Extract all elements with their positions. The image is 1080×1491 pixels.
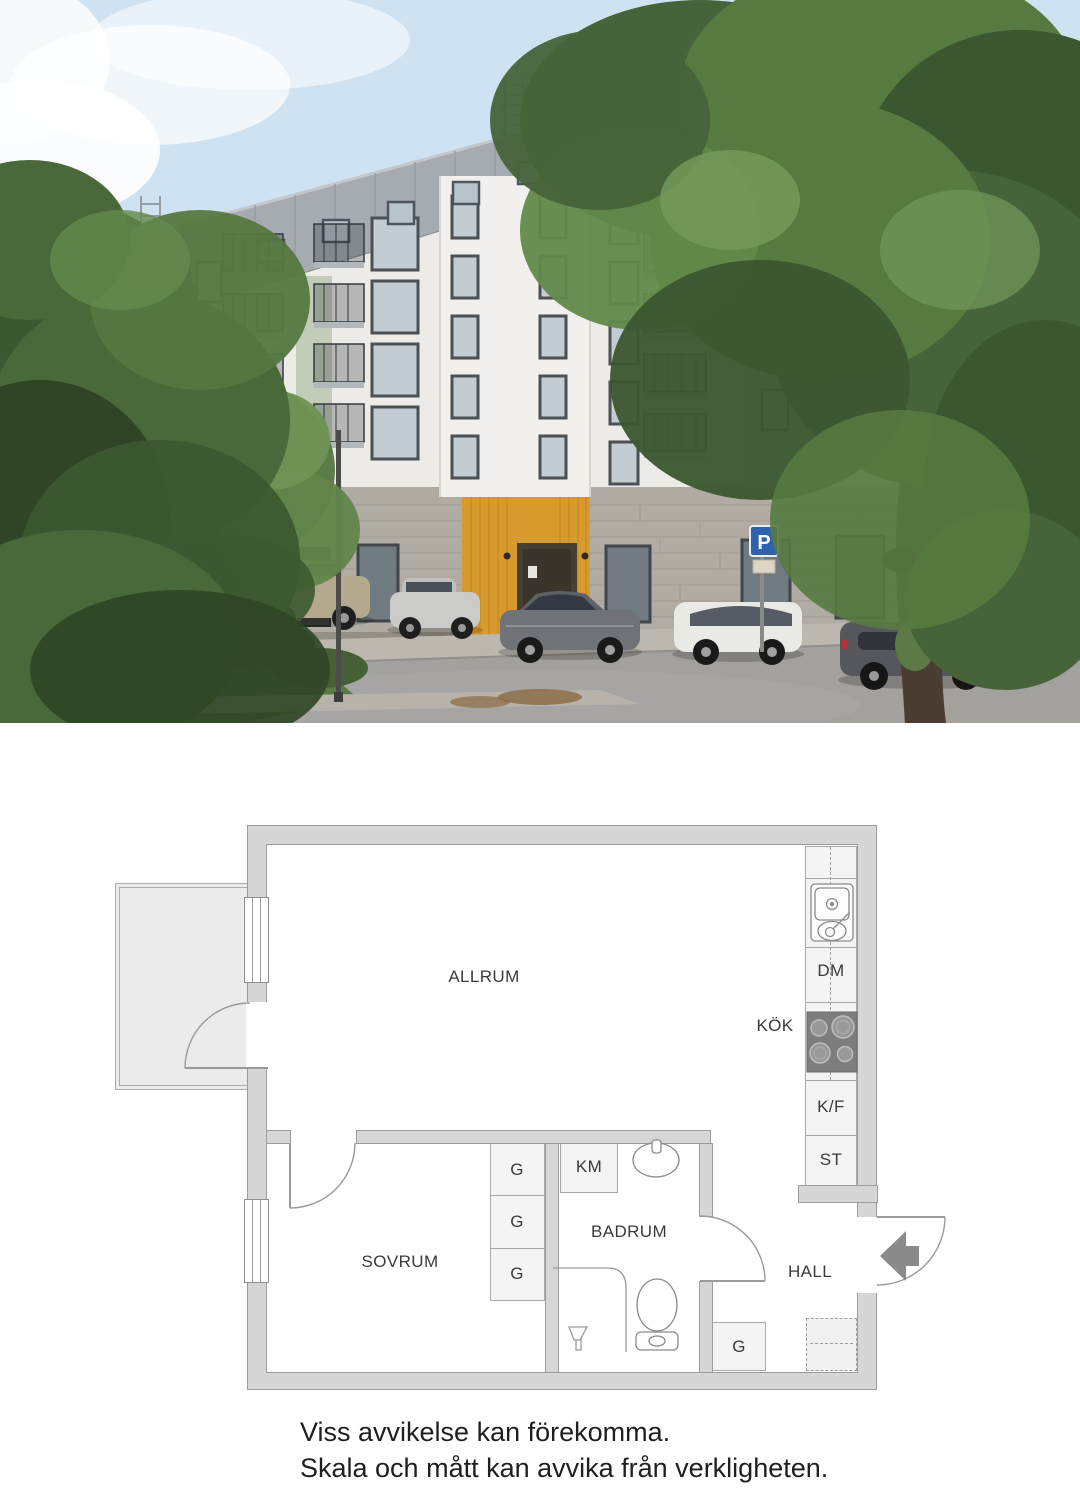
wall-segment <box>545 1143 559 1373</box>
room-label-allrum: ALLRUM <box>448 967 519 987</box>
stove-cell <box>805 1002 857 1081</box>
wall-segment <box>266 1130 291 1144</box>
label-closet: G <box>510 1212 524 1232</box>
room-label-sovrum: SOVRUM <box>361 1252 438 1272</box>
room-label-kok: KÖK <box>756 1016 793 1036</box>
balcony-door-opening <box>246 1002 268 1068</box>
label-cleaning-closet: ST <box>820 1150 843 1170</box>
wall-segment <box>699 1143 713 1217</box>
wall-segment <box>699 1281 713 1373</box>
label-closet: G <box>510 1160 524 1180</box>
room-label-hall: HALL <box>788 1262 832 1282</box>
window <box>244 1199 269 1283</box>
disclaimer-text: Viss avvikelse kan förekomma. Skala och … <box>300 1414 828 1486</box>
apartment-interior <box>266 844 858 1373</box>
label-closet: G <box>732 1337 746 1357</box>
entrance-arrow-icon <box>880 1231 919 1281</box>
kitchen-sink-cell <box>805 878 857 948</box>
floor-plan: ALLRUM DM KÖK K/F ST G G G KM BADRUM SOV… <box>0 0 1080 1491</box>
reserved-wardrobe-dashed <box>806 1318 857 1371</box>
label-dishwasher: DM <box>817 961 844 981</box>
room-label-badrum: BADRUM <box>591 1222 667 1242</box>
label-fridge-freezer: K/F <box>817 1097 845 1117</box>
kitchen-counter-cell <box>805 846 857 879</box>
label-closet: G <box>510 1264 524 1284</box>
label-washing-machine: KM <box>576 1157 602 1177</box>
entrance-door-symbol <box>877 1217 945 1285</box>
balcony <box>115 883 252 1090</box>
reserved-wardrobe-divider <box>810 1343 853 1344</box>
wall-segment <box>356 1130 711 1144</box>
entrance-opening <box>856 1217 879 1293</box>
window <box>244 897 269 983</box>
wall-segment <box>798 1185 878 1203</box>
disclaimer-line-2: Skala och mått kan avvika från verklighe… <box>300 1450 828 1486</box>
disclaimer-line-1: Viss avvikelse kan förekomma. <box>300 1414 828 1450</box>
listing-page: P <box>0 0 1080 1491</box>
